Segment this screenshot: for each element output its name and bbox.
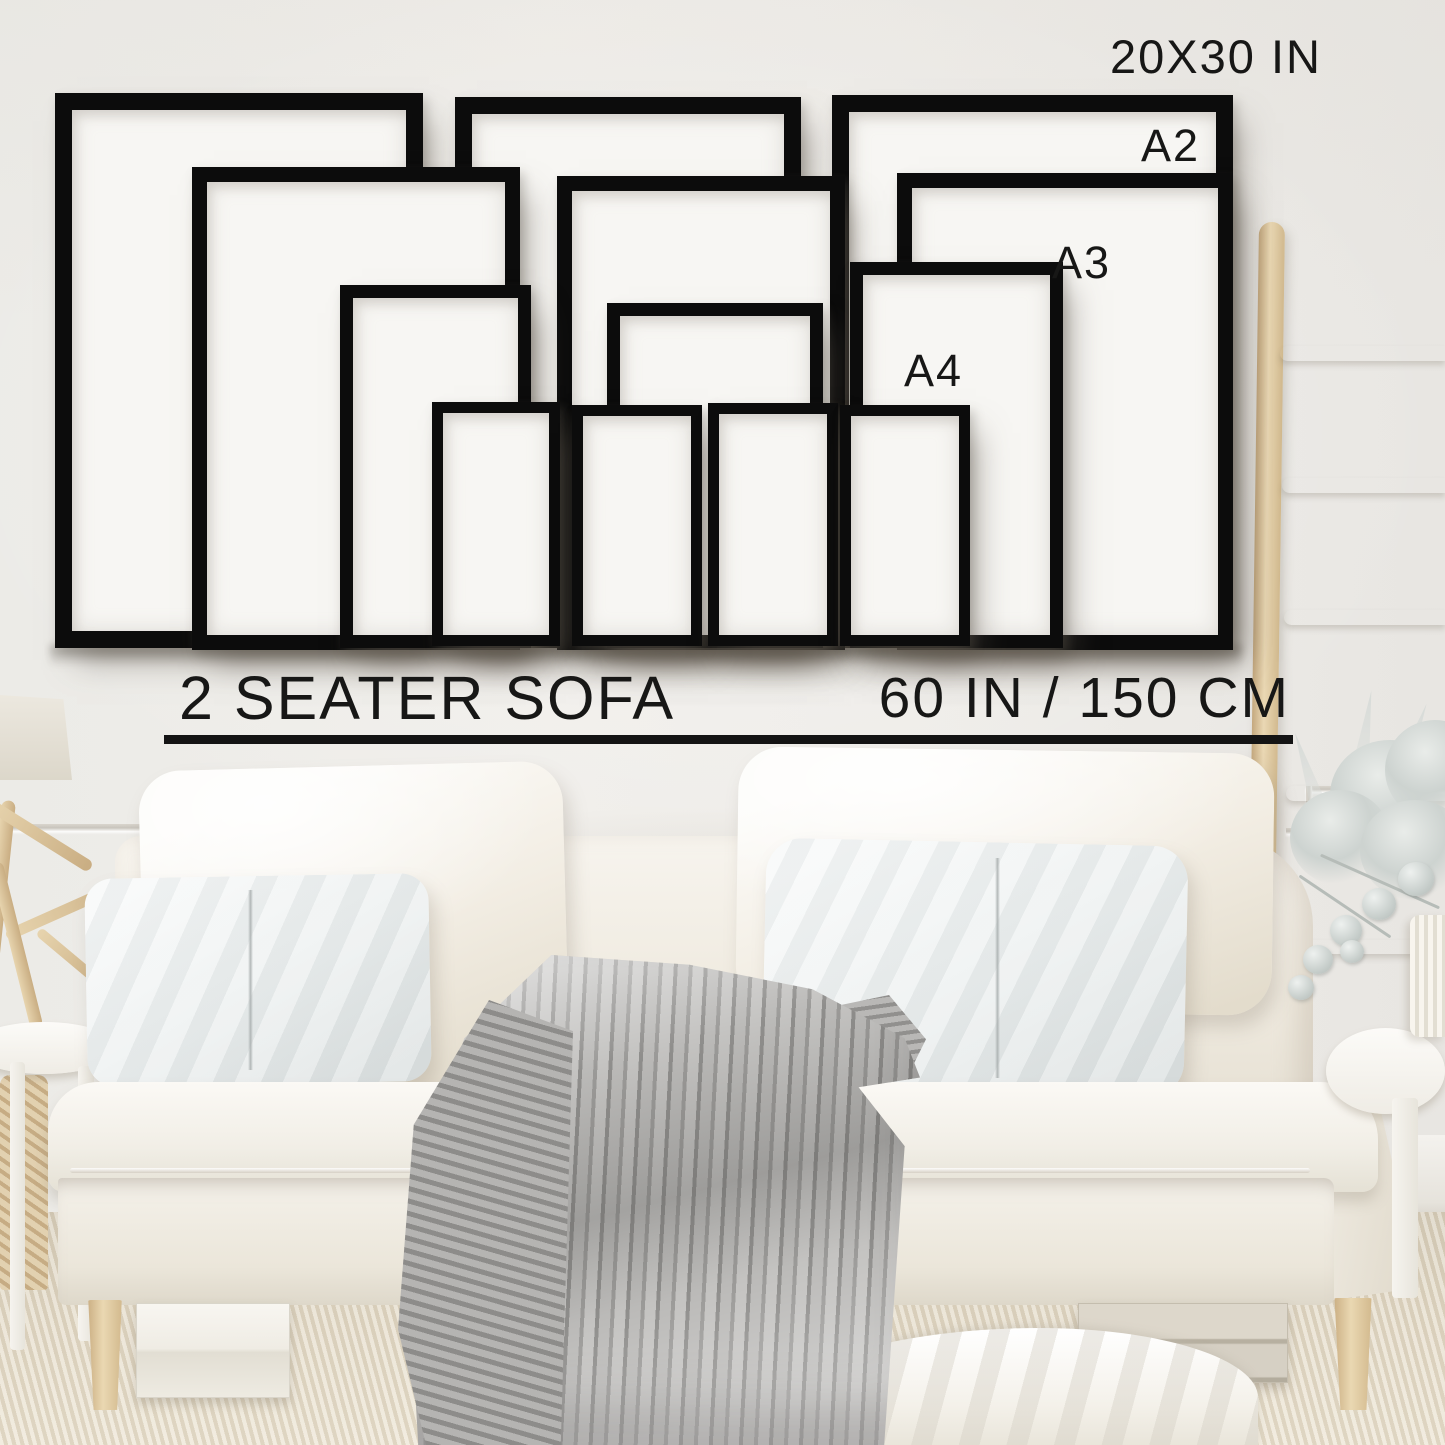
picture-frame-a4-1	[432, 402, 560, 646]
sofa-label: 2 SEATER SOFA	[179, 668, 675, 729]
plant-leaf-5	[1288, 975, 1314, 1000]
plant-leaf-4	[1303, 945, 1333, 974]
plant-leaf-1	[1398, 862, 1434, 896]
picture-frame-a4-3	[708, 403, 838, 646]
picture-frame-a4-right	[840, 405, 970, 646]
side-table-right-leg	[1392, 1098, 1418, 1298]
ladder-rung-1	[1280, 346, 1445, 361]
pillow-seam-left	[248, 890, 253, 1070]
label-a2: A2	[1141, 123, 1200, 168]
label-a4: A4	[904, 348, 963, 393]
picture-frame-a4-2	[572, 405, 702, 646]
front-pillow-left	[84, 873, 432, 1087]
pillow-seam-right	[995, 858, 1000, 1078]
plant-leaf-6	[1340, 940, 1364, 963]
width-underline	[164, 735, 1293, 744]
vase	[1410, 915, 1445, 1037]
frame-size-title: 20X30 IN	[1096, 33, 1322, 80]
side-table-left-leg-1	[10, 1062, 25, 1350]
storage-box-left	[136, 1303, 290, 1398]
side-table-right-top	[1326, 1028, 1445, 1114]
ladder-rung-2	[1282, 478, 1445, 493]
living-room-size-guide: 20X30 IN A2 A3 A4 2 SEATER SOFA 60 IN / …	[0, 0, 1445, 1445]
label-a3: A3	[1052, 240, 1111, 285]
sofa-width-label: 60 IN / 150 CM	[850, 670, 1290, 727]
ladder-rung-3	[1284, 610, 1445, 625]
plant-leaf-2	[1362, 888, 1396, 920]
lamp-shade	[0, 695, 72, 780]
